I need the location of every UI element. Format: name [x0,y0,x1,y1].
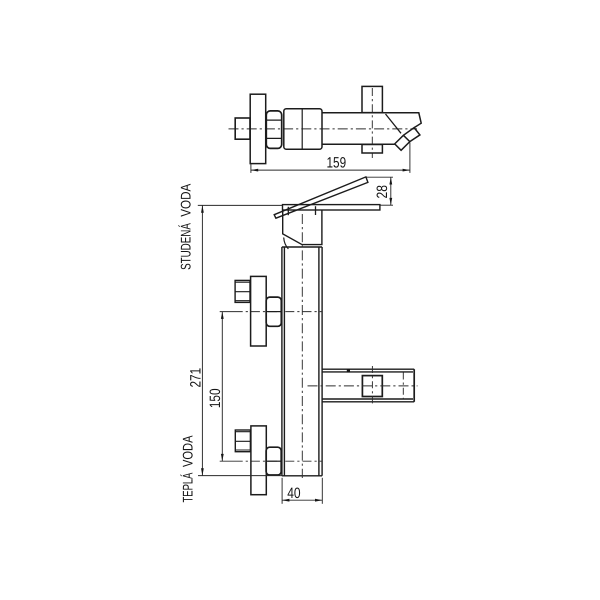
svg-text:40: 40 [287,485,300,502]
svg-text:VODA: VODA [178,183,194,217]
svg-text:STUDENÁ: STUDENÁ [178,223,194,270]
svg-text:28: 28 [374,185,391,198]
svg-text:TEPLÁ: TEPLÁ [179,472,195,502]
svg-text:150: 150 [207,389,224,409]
svg-text:271: 271 [187,368,204,388]
svg-text:VODA: VODA [179,435,195,467]
svg-text:159: 159 [327,155,347,172]
